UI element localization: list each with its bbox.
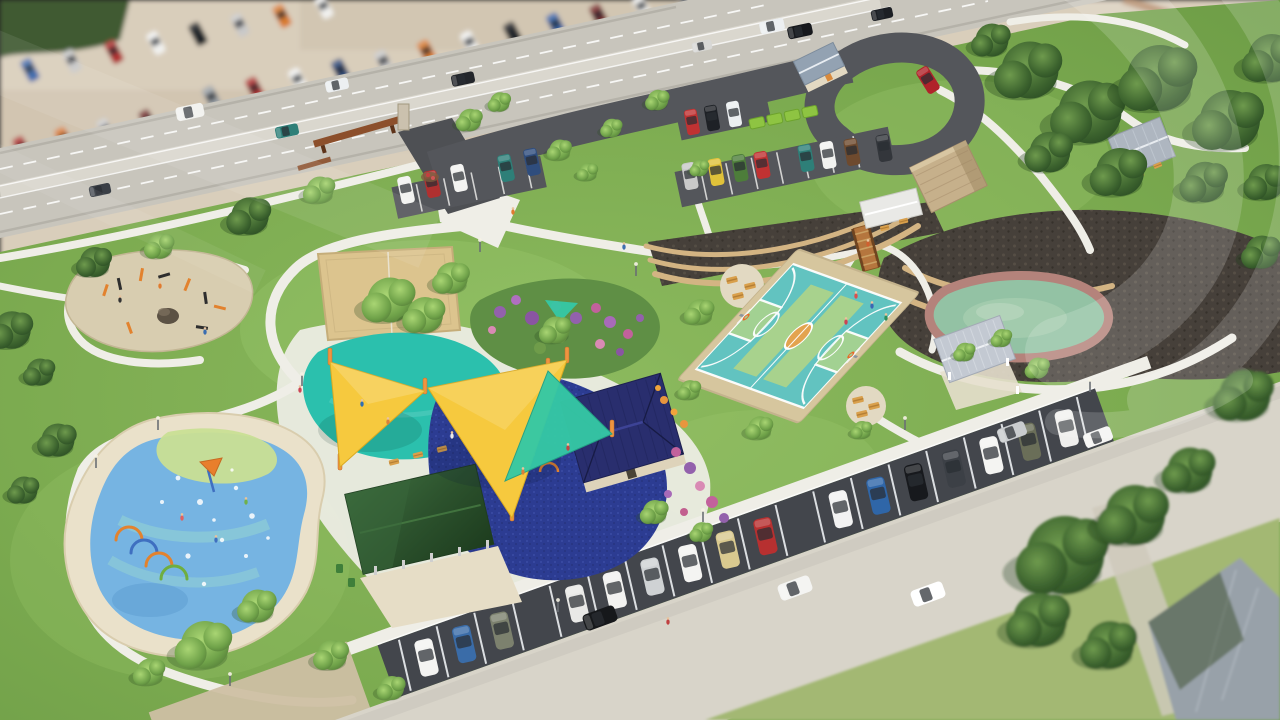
person (844, 317, 847, 325)
person (450, 431, 453, 439)
person (298, 385, 301, 393)
person (214, 535, 217, 543)
trash-can (336, 564, 343, 573)
person (866, 239, 869, 247)
person (521, 467, 524, 475)
stone-pier (398, 104, 409, 130)
park-aerial-rendering (0, 0, 1280, 720)
park-scene-canvas (0, 0, 1280, 720)
person (566, 443, 569, 451)
person (158, 281, 161, 289)
person (360, 399, 363, 407)
person (622, 242, 625, 250)
person (244, 497, 247, 505)
person (854, 291, 857, 299)
person (870, 301, 873, 309)
person (511, 207, 514, 215)
person (180, 513, 183, 521)
person (386, 417, 389, 425)
person (884, 313, 887, 321)
person (118, 295, 121, 303)
trash-can (348, 578, 355, 587)
person (666, 617, 669, 625)
person (203, 327, 206, 335)
